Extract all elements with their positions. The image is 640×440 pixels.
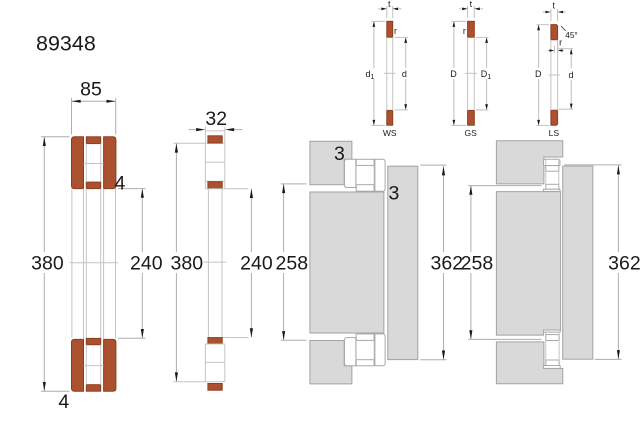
svg-text:t: t xyxy=(388,0,391,9)
svg-text:3: 3 xyxy=(334,143,345,165)
svg-text:D1: D1 xyxy=(481,69,492,81)
svg-text:258: 258 xyxy=(276,253,309,275)
svg-text:t: t xyxy=(470,0,473,9)
svg-text:t: t xyxy=(553,1,556,11)
svg-text:32: 32 xyxy=(205,108,227,130)
svg-text:D: D xyxy=(450,69,457,79)
svg-text:4: 4 xyxy=(114,173,125,195)
svg-text:240: 240 xyxy=(130,253,163,275)
svg-text:4: 4 xyxy=(58,391,69,413)
svg-text:258: 258 xyxy=(461,253,494,275)
svg-text:GS: GS xyxy=(464,128,477,138)
svg-text:r: r xyxy=(463,26,466,36)
svg-text:240: 240 xyxy=(240,253,273,275)
svg-text:3: 3 xyxy=(388,182,399,204)
svg-text:r: r xyxy=(559,37,562,47)
svg-text:r: r xyxy=(394,26,397,36)
svg-text:WS: WS xyxy=(383,128,397,138)
svg-text:380: 380 xyxy=(171,253,204,275)
svg-text:89348: 89348 xyxy=(36,32,96,56)
svg-text:45°: 45° xyxy=(565,31,577,40)
svg-text:362: 362 xyxy=(431,253,464,275)
svg-text:d: d xyxy=(402,69,407,79)
svg-text:LS: LS xyxy=(549,128,560,138)
svg-text:d: d xyxy=(568,70,573,80)
svg-text:85: 85 xyxy=(80,79,102,101)
svg-text:D: D xyxy=(535,69,542,79)
svg-text:380: 380 xyxy=(31,253,64,275)
svg-text:d1: d1 xyxy=(366,69,375,81)
svg-text:362: 362 xyxy=(608,253,640,275)
